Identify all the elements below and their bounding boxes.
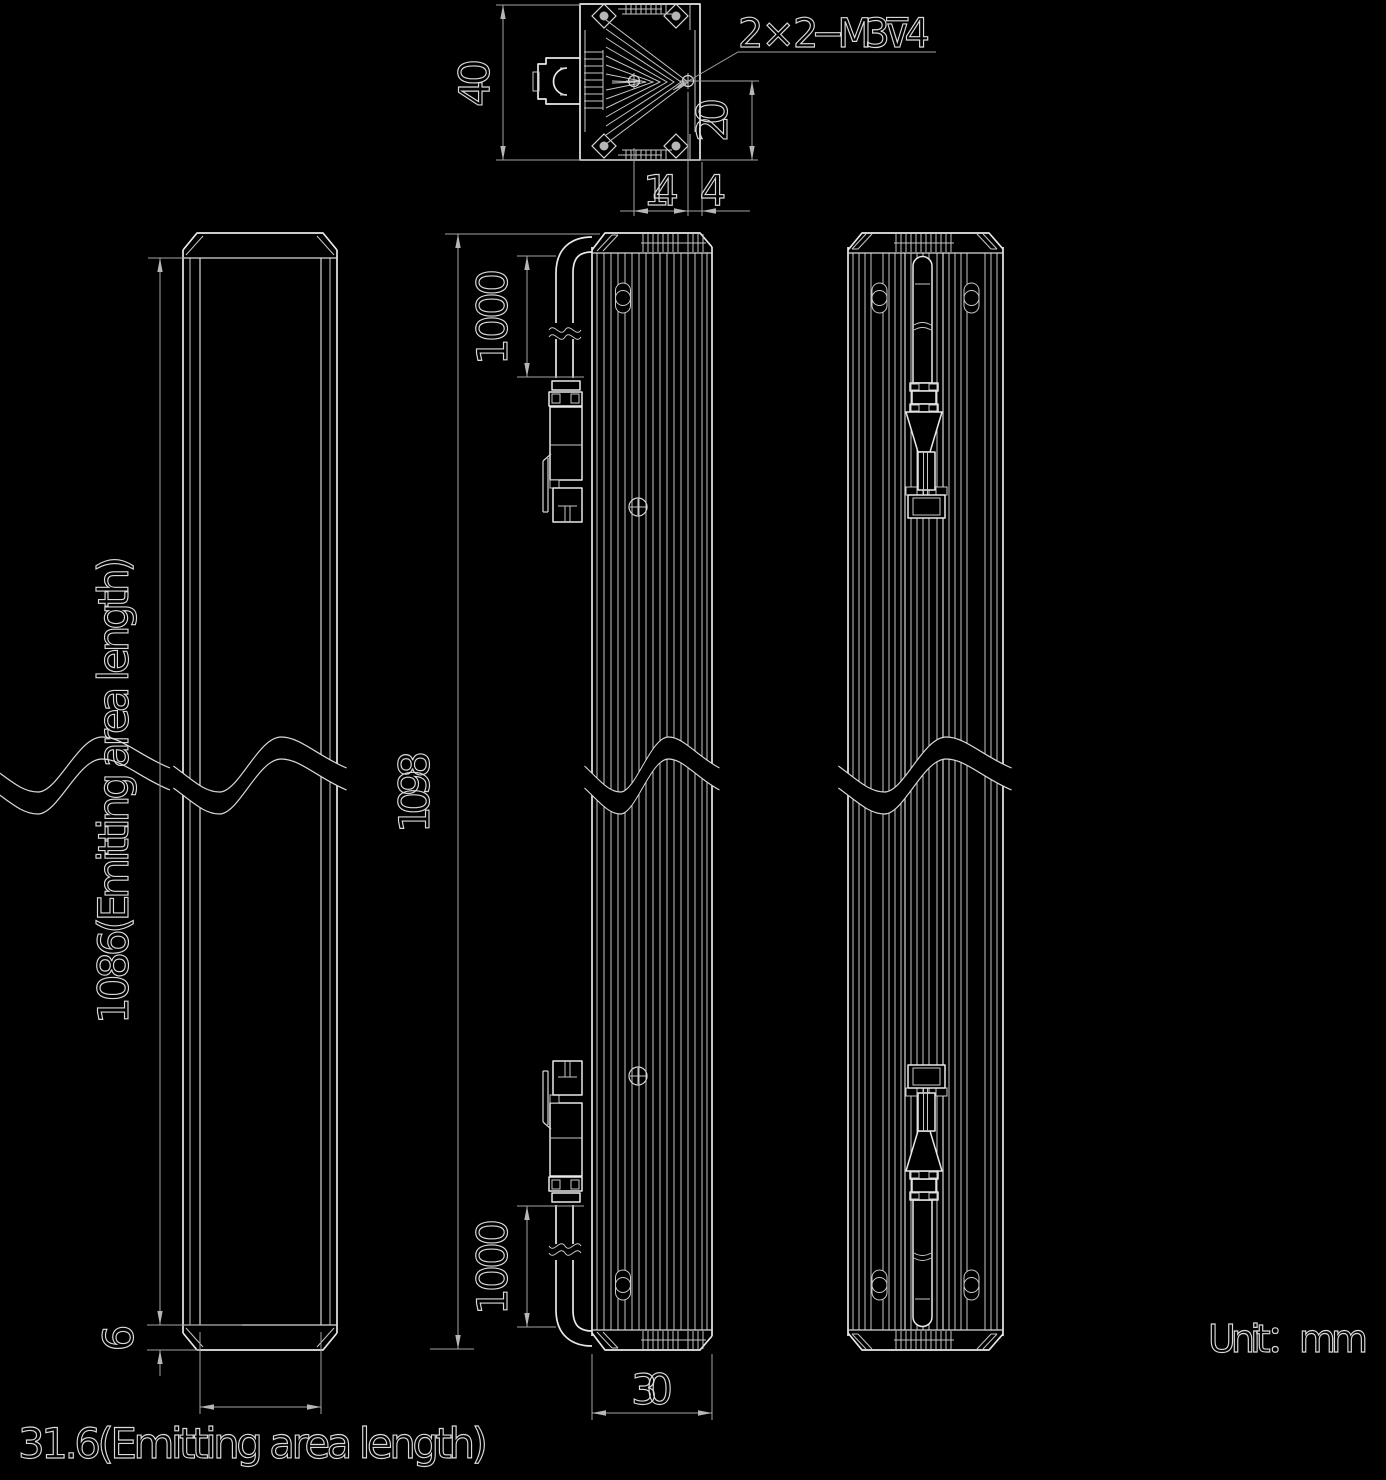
drawing-canvas: 40 20 14 4 2 × 2−M3⊽4 <box>0 0 1386 1480</box>
fin-comb <box>584 50 603 110</box>
screw <box>629 498 647 516</box>
dim-cable-bottom-label: 1000 <box>468 1219 517 1315</box>
dim-section-height-label: 40 <box>450 59 499 107</box>
dim-bottom-margin-label: 6 <box>94 1325 143 1352</box>
dim-emitting-length-label: 1086(Emitting area length) <box>89 556 138 1024</box>
technical-drawing: 40 20 14 4 2 × 2−M3⊽4 <box>0 0 1386 1480</box>
background <box>0 0 1386 1480</box>
dim-hole-edge-label: 4 <box>700 166 727 215</box>
dim-emitting-width-label: 31.6(Emitting area length) <box>18 1419 488 1468</box>
dim-body-width-label: 30 <box>631 1365 673 1414</box>
thread-note-label: 2 × 2−M3⊽4 <box>738 11 930 57</box>
dim-cable-top-label: 1000 <box>468 269 517 365</box>
unit-label: Unit：mm <box>1208 1317 1368 1361</box>
dim-overall-length-label: 1098 <box>390 751 439 833</box>
dim-hole-pitch-label: 14 <box>643 166 679 215</box>
mounting-slot <box>616 283 631 313</box>
dim-hole-offset-label: 20 <box>688 98 737 142</box>
